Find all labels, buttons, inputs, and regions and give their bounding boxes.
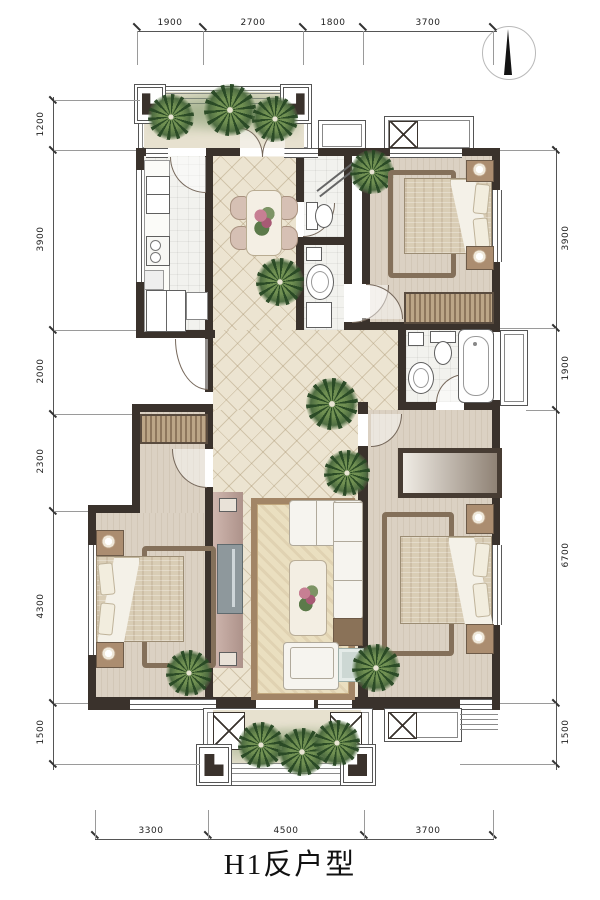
sink-basin (311, 271, 329, 293)
dim-ext (500, 328, 556, 329)
flower-vase (295, 582, 319, 614)
dim-label: 1800 (303, 18, 363, 28)
dimension-line-left (53, 97, 54, 770)
speaker (219, 498, 237, 512)
window (146, 148, 168, 158)
toilet-bowl (315, 204, 333, 228)
railing (460, 710, 498, 730)
pillow (472, 582, 490, 617)
window (390, 148, 462, 158)
pillow (97, 562, 115, 595)
dimension-line-top (137, 31, 497, 32)
dim-label: 1200 (36, 94, 46, 154)
speaker (219, 652, 237, 666)
plant-icon (166, 650, 212, 696)
dim-ext (137, 31, 138, 65)
window (492, 545, 502, 625)
loveseat-seat (290, 647, 334, 679)
bed (96, 556, 184, 642)
bay-window (500, 330, 528, 406)
sofa-long (333, 500, 363, 620)
lamp-icon (471, 510, 486, 525)
loveseat (283, 642, 339, 690)
dim-label: 2300 (36, 431, 46, 491)
plant-icon (314, 720, 360, 766)
dim-ext (54, 150, 136, 151)
dim-ext (54, 764, 200, 765)
dim-ext (493, 810, 494, 839)
kitchen-sink (146, 194, 170, 214)
dim-label: 1500 (561, 702, 571, 762)
dim-label: 6700 (561, 525, 571, 585)
lamp-icon (472, 162, 487, 177)
dimension-line-bottom (95, 839, 494, 840)
dim-tick (199, 23, 207, 31)
dim-label: 1500 (36, 702, 46, 762)
wardrobe (140, 414, 208, 444)
kitchen-sink (146, 176, 170, 196)
dim-ext (303, 31, 304, 65)
dim-label: 3700 (398, 18, 458, 28)
flower-centerpiece (251, 203, 275, 239)
dim-ext (208, 810, 209, 839)
bed (404, 178, 492, 254)
kitchen-cabinet (186, 292, 208, 320)
plant-icon (306, 378, 358, 430)
wall-bed2-top (132, 404, 213, 412)
dim-ext (500, 703, 556, 704)
toilet-bowl (434, 341, 452, 365)
tv-screen (232, 549, 235, 607)
door-gap (436, 402, 464, 410)
pillow (472, 183, 490, 214)
dim-label: 2700 (223, 18, 283, 28)
pillow (472, 542, 490, 577)
plant-icon (238, 722, 284, 768)
window (284, 148, 318, 158)
dim-ext (54, 414, 132, 415)
dim-label: 4500 (256, 826, 316, 836)
burner-icon (150, 240, 161, 251)
shelf (408, 332, 424, 346)
plant-icon (324, 450, 370, 496)
dim-ext (500, 150, 556, 151)
window (460, 699, 492, 710)
dim-label: 2000 (36, 341, 46, 401)
dim-label: 3300 (121, 826, 181, 836)
shelf (306, 247, 322, 261)
dim-label: 3900 (561, 208, 571, 268)
dim-label: 3900 (36, 209, 46, 269)
drain-icon (473, 342, 477, 346)
sink-basin (413, 368, 429, 388)
door-gap (358, 414, 368, 446)
plant-icon (256, 258, 304, 306)
dim-ext (493, 31, 494, 65)
tv (217, 544, 243, 614)
dim-label: 3700 (398, 826, 458, 836)
wall-ensuite-left (398, 330, 406, 410)
ac-unit-icon (389, 121, 418, 148)
dim-ext (203, 31, 204, 65)
door-gap (344, 284, 352, 322)
plant-icon (352, 644, 400, 692)
door-gap (168, 148, 206, 156)
plant-icon (148, 94, 194, 140)
balcony-pillar (196, 744, 232, 786)
plant-icon (252, 96, 298, 142)
bed (400, 536, 492, 624)
plan-title: H1反户型 (140, 841, 440, 883)
dining-chair (281, 226, 298, 250)
dim-ext (54, 511, 88, 512)
lamp-icon (471, 630, 486, 645)
lamp-icon (101, 534, 116, 549)
washing-machine (306, 302, 332, 328)
closet (398, 448, 502, 498)
dining-chair (281, 196, 298, 220)
lamp-icon (472, 249, 487, 264)
dim-ext (95, 810, 96, 839)
dim-label: 4300 (36, 576, 46, 636)
bay-platform-top (318, 120, 366, 151)
dim-label: 1900 (140, 18, 200, 28)
dim-ext (54, 100, 140, 101)
dimension-line-right (556, 148, 557, 770)
lamp-icon (101, 646, 116, 661)
plant-icon (204, 84, 256, 136)
wardrobe (404, 292, 494, 324)
dim-ext (526, 410, 556, 411)
corner-cabinet (144, 270, 164, 290)
dim-ext (460, 764, 556, 765)
entry-door (175, 339, 208, 390)
ac-unit-icon (388, 712, 417, 739)
wall-bed2-upperleft (132, 404, 140, 513)
dim-ext (54, 703, 88, 704)
dim-ext (364, 810, 365, 839)
compass-needle-icon (504, 29, 512, 75)
corner-table (333, 618, 363, 646)
dim-ext (363, 31, 364, 65)
burner-icon (150, 252, 161, 263)
floor-plan: 1900 2700 1800 3700 1200 3900 2000 2300 … (0, 0, 600, 900)
dining-chair (230, 196, 247, 220)
dim-label: 1900 (561, 338, 571, 398)
dim-ext (54, 330, 136, 331)
pillow (472, 217, 490, 248)
dining-chair (230, 226, 247, 250)
bathtub (458, 329, 494, 403)
fridge (146, 290, 186, 332)
